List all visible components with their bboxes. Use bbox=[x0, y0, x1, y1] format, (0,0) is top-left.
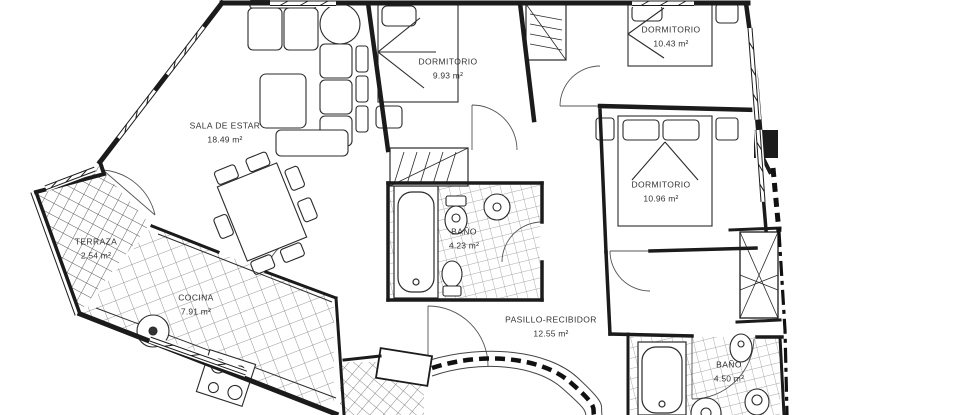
sink-bano-2 bbox=[730, 334, 752, 362]
wardrobe-pasillo bbox=[740, 232, 778, 318]
toilet-bano-1 bbox=[445, 196, 467, 234]
bed-dormitorio-3 bbox=[596, 116, 738, 226]
closet-dormitorio-1 bbox=[390, 148, 468, 186]
bathtub-bano-2 bbox=[638, 342, 686, 415]
bed-dormitorio-1 bbox=[376, 2, 458, 128]
toilet-bano-2 bbox=[745, 389, 769, 415]
round-table bbox=[320, 4, 360, 44]
entry-curved-wall bbox=[430, 351, 602, 415]
closet-dormitorio-2 bbox=[526, 4, 566, 60]
floor-plan: SALA DE ESTAR 18.49 m² DORMITORIO 9.93 m… bbox=[0, 0, 960, 415]
bidet-bano-1 bbox=[442, 261, 462, 296]
floor-plan-drawing bbox=[0, 0, 960, 415]
sink-bano-1 bbox=[484, 194, 510, 220]
bed-dormitorio-2 bbox=[628, 2, 738, 66]
bathtub-bano-1 bbox=[394, 186, 438, 298]
